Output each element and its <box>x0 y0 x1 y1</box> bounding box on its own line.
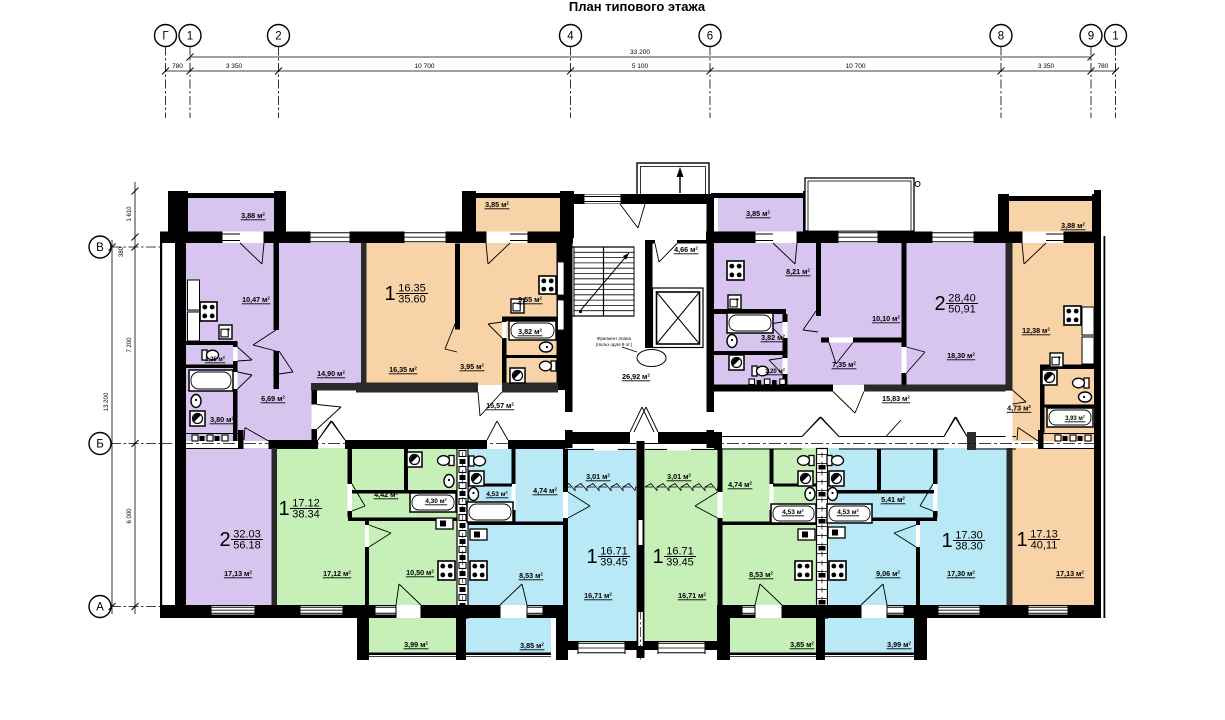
svg-text:1: 1 <box>586 546 597 568</box>
svg-text:13 200: 13 200 <box>104 392 110 411</box>
svg-text:3,82 м2: 3,82 м2 <box>761 333 785 342</box>
svg-text:1: 1 <box>187 31 193 43</box>
svg-text:56.18: 56.18 <box>233 540 261 552</box>
svg-text:6: 6 <box>707 31 713 43</box>
svg-text:780: 780 <box>1098 63 1109 70</box>
svg-text:3,95 м2: 3,95 м2 <box>460 362 484 371</box>
svg-text:7 200: 7 200 <box>127 337 133 353</box>
svg-text:14,90 м2: 14,90 м2 <box>317 369 345 378</box>
svg-text:10,10 м2: 10,10 м2 <box>872 314 900 323</box>
svg-text:10 700: 10 700 <box>415 63 435 70</box>
svg-text:Г: Г <box>162 31 169 43</box>
svg-text:39.45: 39.45 <box>600 557 628 569</box>
svg-text:7,35 м2: 7,35 м2 <box>832 360 856 369</box>
svg-text:9,55 м2: 9,55 м2 <box>518 295 542 304</box>
svg-text:4,30 м2: 4,30 м2 <box>425 497 447 506</box>
svg-text:3,99 м2: 3,99 м2 <box>887 640 911 649</box>
svg-text:Фрагмент плана: Фрагмент плана <box>597 336 632 341</box>
svg-text:1: 1 <box>1112 31 1118 43</box>
svg-text:4,53 м2: 4,53 м2 <box>486 490 508 499</box>
svg-text:1,20 м2: 1,20 м2 <box>765 368 785 375</box>
svg-text:12,38 м2: 12,38 м2 <box>1022 326 1050 335</box>
svg-text:3,85 м2: 3,85 м2 <box>790 640 814 649</box>
svg-text:3,82 м2: 3,82 м2 <box>518 327 542 336</box>
svg-text:(польз одля 9 эт.): (польз одля 9 эт.) <box>596 342 633 347</box>
svg-text:17,12 м2: 17,12 м2 <box>323 569 351 578</box>
svg-text:1 610: 1 610 <box>127 206 133 222</box>
svg-text:38.30: 38.30 <box>955 541 983 553</box>
svg-text:780: 780 <box>172 63 183 70</box>
svg-text:38.34: 38.34 <box>292 509 320 521</box>
svg-text:17,13 м2: 17,13 м2 <box>224 569 252 578</box>
svg-text:2: 2 <box>219 529 230 551</box>
svg-text:4,53 м2: 4,53 м2 <box>782 508 804 517</box>
svg-text:1: 1 <box>384 283 395 305</box>
svg-text:8,21 м2: 8,21 м2 <box>786 267 810 276</box>
svg-text:А: А <box>96 602 104 614</box>
svg-text:4: 4 <box>567 31 574 43</box>
svg-text:17,30 м2: 17,30 м2 <box>947 569 975 578</box>
svg-text:18,30 м2: 18,30 м2 <box>947 351 975 360</box>
svg-text:1: 1 <box>941 530 952 552</box>
svg-text:4,66 м2: 4,66 м2 <box>674 245 698 254</box>
svg-text:2: 2 <box>934 293 945 315</box>
svg-text:3,93 м2: 3,93 м2 <box>1065 415 1085 422</box>
svg-text:6 000: 6 000 <box>127 508 133 524</box>
svg-text:3,85 м2: 3,85 м2 <box>520 641 544 650</box>
svg-text:3,80 м2: 3,80 м2 <box>210 415 234 424</box>
svg-text:3,99 м2: 3,99 м2 <box>404 640 428 649</box>
svg-text:16,71 м2: 16,71 м2 <box>678 591 706 600</box>
svg-text:40,11: 40,11 <box>1031 540 1058 552</box>
svg-text:16,35 м2: 16,35 м2 <box>389 365 417 374</box>
svg-text:Б: Б <box>96 439 104 451</box>
svg-text:3 350: 3 350 <box>1038 63 1055 70</box>
svg-text:3,01 м2: 3,01 м2 <box>586 472 610 481</box>
svg-text:В: В <box>96 242 104 254</box>
svg-text:380: 380 <box>119 246 125 257</box>
svg-text:1: 1 <box>278 498 289 520</box>
svg-text:15,83 м2: 15,83 м2 <box>882 394 910 403</box>
svg-text:9: 9 <box>1088 31 1094 43</box>
svg-text:3 350: 3 350 <box>226 63 243 70</box>
svg-text:4,53 м2: 4,53 м2 <box>837 508 859 517</box>
svg-text:4,73 м2: 4,73 м2 <box>1007 404 1031 413</box>
svg-text:2: 2 <box>275 31 281 43</box>
svg-text:16,71 м2: 16,71 м2 <box>584 591 612 600</box>
svg-text:10,47 м2: 10,47 м2 <box>242 295 270 304</box>
svg-text:1,25 м2: 1,25 м2 <box>205 356 225 363</box>
svg-text:3,88 м2: 3,88 м2 <box>241 211 265 220</box>
svg-text:3,85 м2: 3,85 м2 <box>485 200 509 209</box>
svg-text:39.45: 39.45 <box>666 557 694 569</box>
svg-text:15,57 м2: 15,57 м2 <box>486 401 514 410</box>
svg-text:3,85 м2: 3,85 м2 <box>746 209 770 218</box>
svg-text:17,13 м2: 17,13 м2 <box>1056 569 1084 578</box>
svg-text:1: 1 <box>1016 529 1027 551</box>
svg-text:10 700: 10 700 <box>846 63 866 70</box>
svg-text:35.60: 35.60 <box>398 294 426 306</box>
svg-text:3,88 м2: 3,88 м2 <box>1061 221 1085 230</box>
svg-text:8,53 м2: 8,53 м2 <box>519 571 543 580</box>
svg-text:План типового этажа: План типового этажа <box>569 0 706 14</box>
svg-text:4,74 м2: 4,74 м2 <box>533 486 557 495</box>
svg-text:5,41 м2: 5,41 м2 <box>881 495 905 504</box>
svg-text:6,69 м2: 6,69 м2 <box>261 394 285 403</box>
svg-text:10,50 м2: 10,50 м2 <box>406 568 434 577</box>
svg-text:8: 8 <box>998 31 1004 43</box>
svg-text:33 200: 33 200 <box>630 49 650 56</box>
svg-text:9,06 м2: 9,06 м2 <box>876 569 900 578</box>
svg-text:4,74 м2: 4,74 м2 <box>728 480 752 489</box>
svg-text:26,92 м2: 26,92 м2 <box>622 372 650 381</box>
svg-text:8,53 м2: 8,53 м2 <box>749 570 773 579</box>
svg-text:3,01 м2: 3,01 м2 <box>667 472 691 481</box>
svg-text:4,42 м2: 4,42 м2 <box>374 490 398 499</box>
svg-text:5 100: 5 100 <box>632 63 649 70</box>
svg-text:1: 1 <box>652 546 663 568</box>
svg-text:50,91: 50,91 <box>948 304 976 316</box>
